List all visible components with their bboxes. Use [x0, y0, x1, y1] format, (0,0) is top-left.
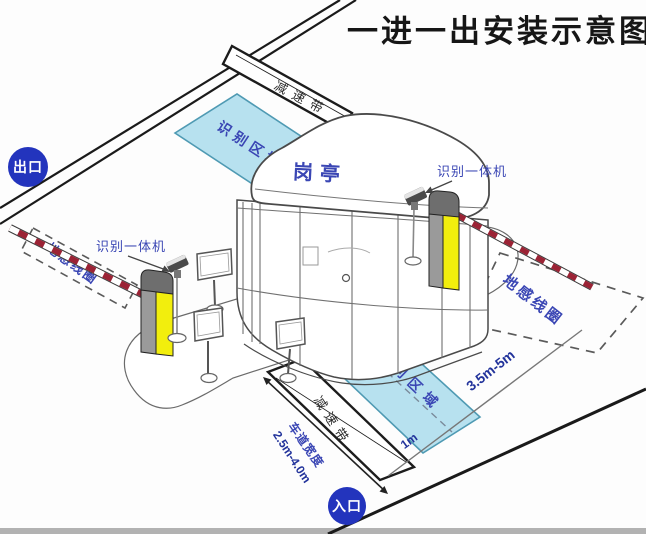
machine-cap-left: [141, 270, 173, 294]
entry-badge: 入口: [328, 487, 366, 525]
camera-mount-right: [411, 202, 418, 210]
reader-label-left-text: 识别一体机: [96, 239, 166, 254]
diagram-canvas: 减速带 识别区域 地感线圈 地感线圈 识别区域 减速带: [0, 0, 646, 534]
machine-cap-right: [429, 191, 459, 217]
page-title: 一进一出安装示意图: [347, 14, 646, 49]
exit-badge: 出口: [8, 147, 48, 187]
reader-label-right-text: 识别一体机: [437, 164, 507, 179]
entry-badge-text: 入口: [332, 498, 362, 514]
barrier-machine-left: [141, 270, 173, 356]
booth-label: 岗亭: [292, 160, 347, 187]
bottom-edge-strip: [0, 528, 646, 534]
installation-diagram: 减速带 识别区域 地感线圈 地感线圈 识别区域 减速带: [0, 0, 646, 534]
exit-badge-text: 出口: [13, 159, 43, 175]
camera-mount-left: [174, 270, 181, 278]
booth-interior-desk: [303, 247, 318, 265]
barrier-machine-right: [429, 191, 459, 290]
